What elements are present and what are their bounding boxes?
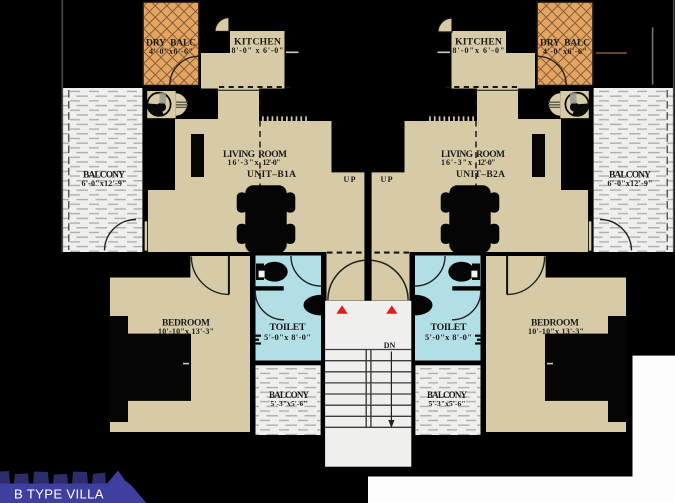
- svg-text:8'-0"x 6'-0": 8'-0"x 6'-0": [453, 46, 505, 55]
- svg-text:10'-10"x 13'-3": 10'-10"x 13'-3": [528, 327, 584, 336]
- svg-text:16'-3"x: 16'-3"x: [228, 158, 259, 167]
- svg-text:5'-3"x5'-6": 5'-3"x5'-6": [271, 399, 308, 408]
- svg-text:UNIT–B1A: UNIT–B1A: [247, 170, 296, 180]
- svg-text:12'-0": 12'-0": [478, 158, 496, 167]
- svg-text:UNIT–B2A: UNIT–B2A: [456, 170, 505, 180]
- svg-text:16'-3"x: 16'-3"x: [441, 158, 472, 167]
- svg-text:DN: DN: [384, 341, 396, 350]
- svg-text:4'-0"x6'-6": 4'-0"x6'-6": [149, 47, 193, 56]
- svg-text:5'-0"x 8'-0": 5'-0"x 8'-0": [264, 332, 311, 342]
- svg-text:6'-0"x12'-9": 6'-0"x12'-9": [608, 179, 653, 188]
- svg-text:4'-0"x6'-6": 4'-0"x6'-6": [543, 47, 587, 56]
- svg-text:6'-0"x12'-9": 6'-0"x12'-9": [82, 179, 127, 188]
- svg-text:5'-0"x 8'-0": 5'-0"x 8'-0": [425, 332, 472, 342]
- svg-text:5'-3"x5'-6": 5'-3"x5'-6": [429, 399, 466, 408]
- svg-text:10'-10"x 13'-3": 10'-10"x 13'-3": [158, 327, 214, 336]
- svg-text:B TYPE VILLA: B TYPE VILLA: [14, 487, 104, 502]
- svg-text:12'-0": 12'-0": [263, 158, 281, 167]
- svg-text:8'-0" x 6'-0": 8'-0" x 6'-0": [232, 46, 284, 55]
